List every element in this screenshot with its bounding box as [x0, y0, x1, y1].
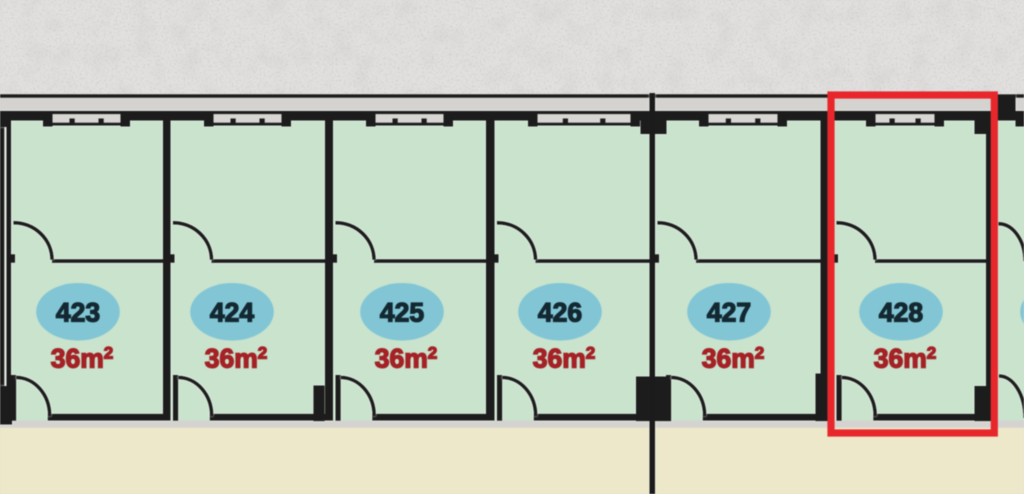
svg-text:425: 425	[380, 298, 424, 328]
svg-text:426: 426	[538, 298, 582, 328]
svg-text:428: 428	[879, 298, 923, 328]
svg-text:424: 424	[210, 298, 254, 328]
svg-text:423: 423	[56, 298, 100, 328]
svg-text:427: 427	[707, 298, 751, 328]
